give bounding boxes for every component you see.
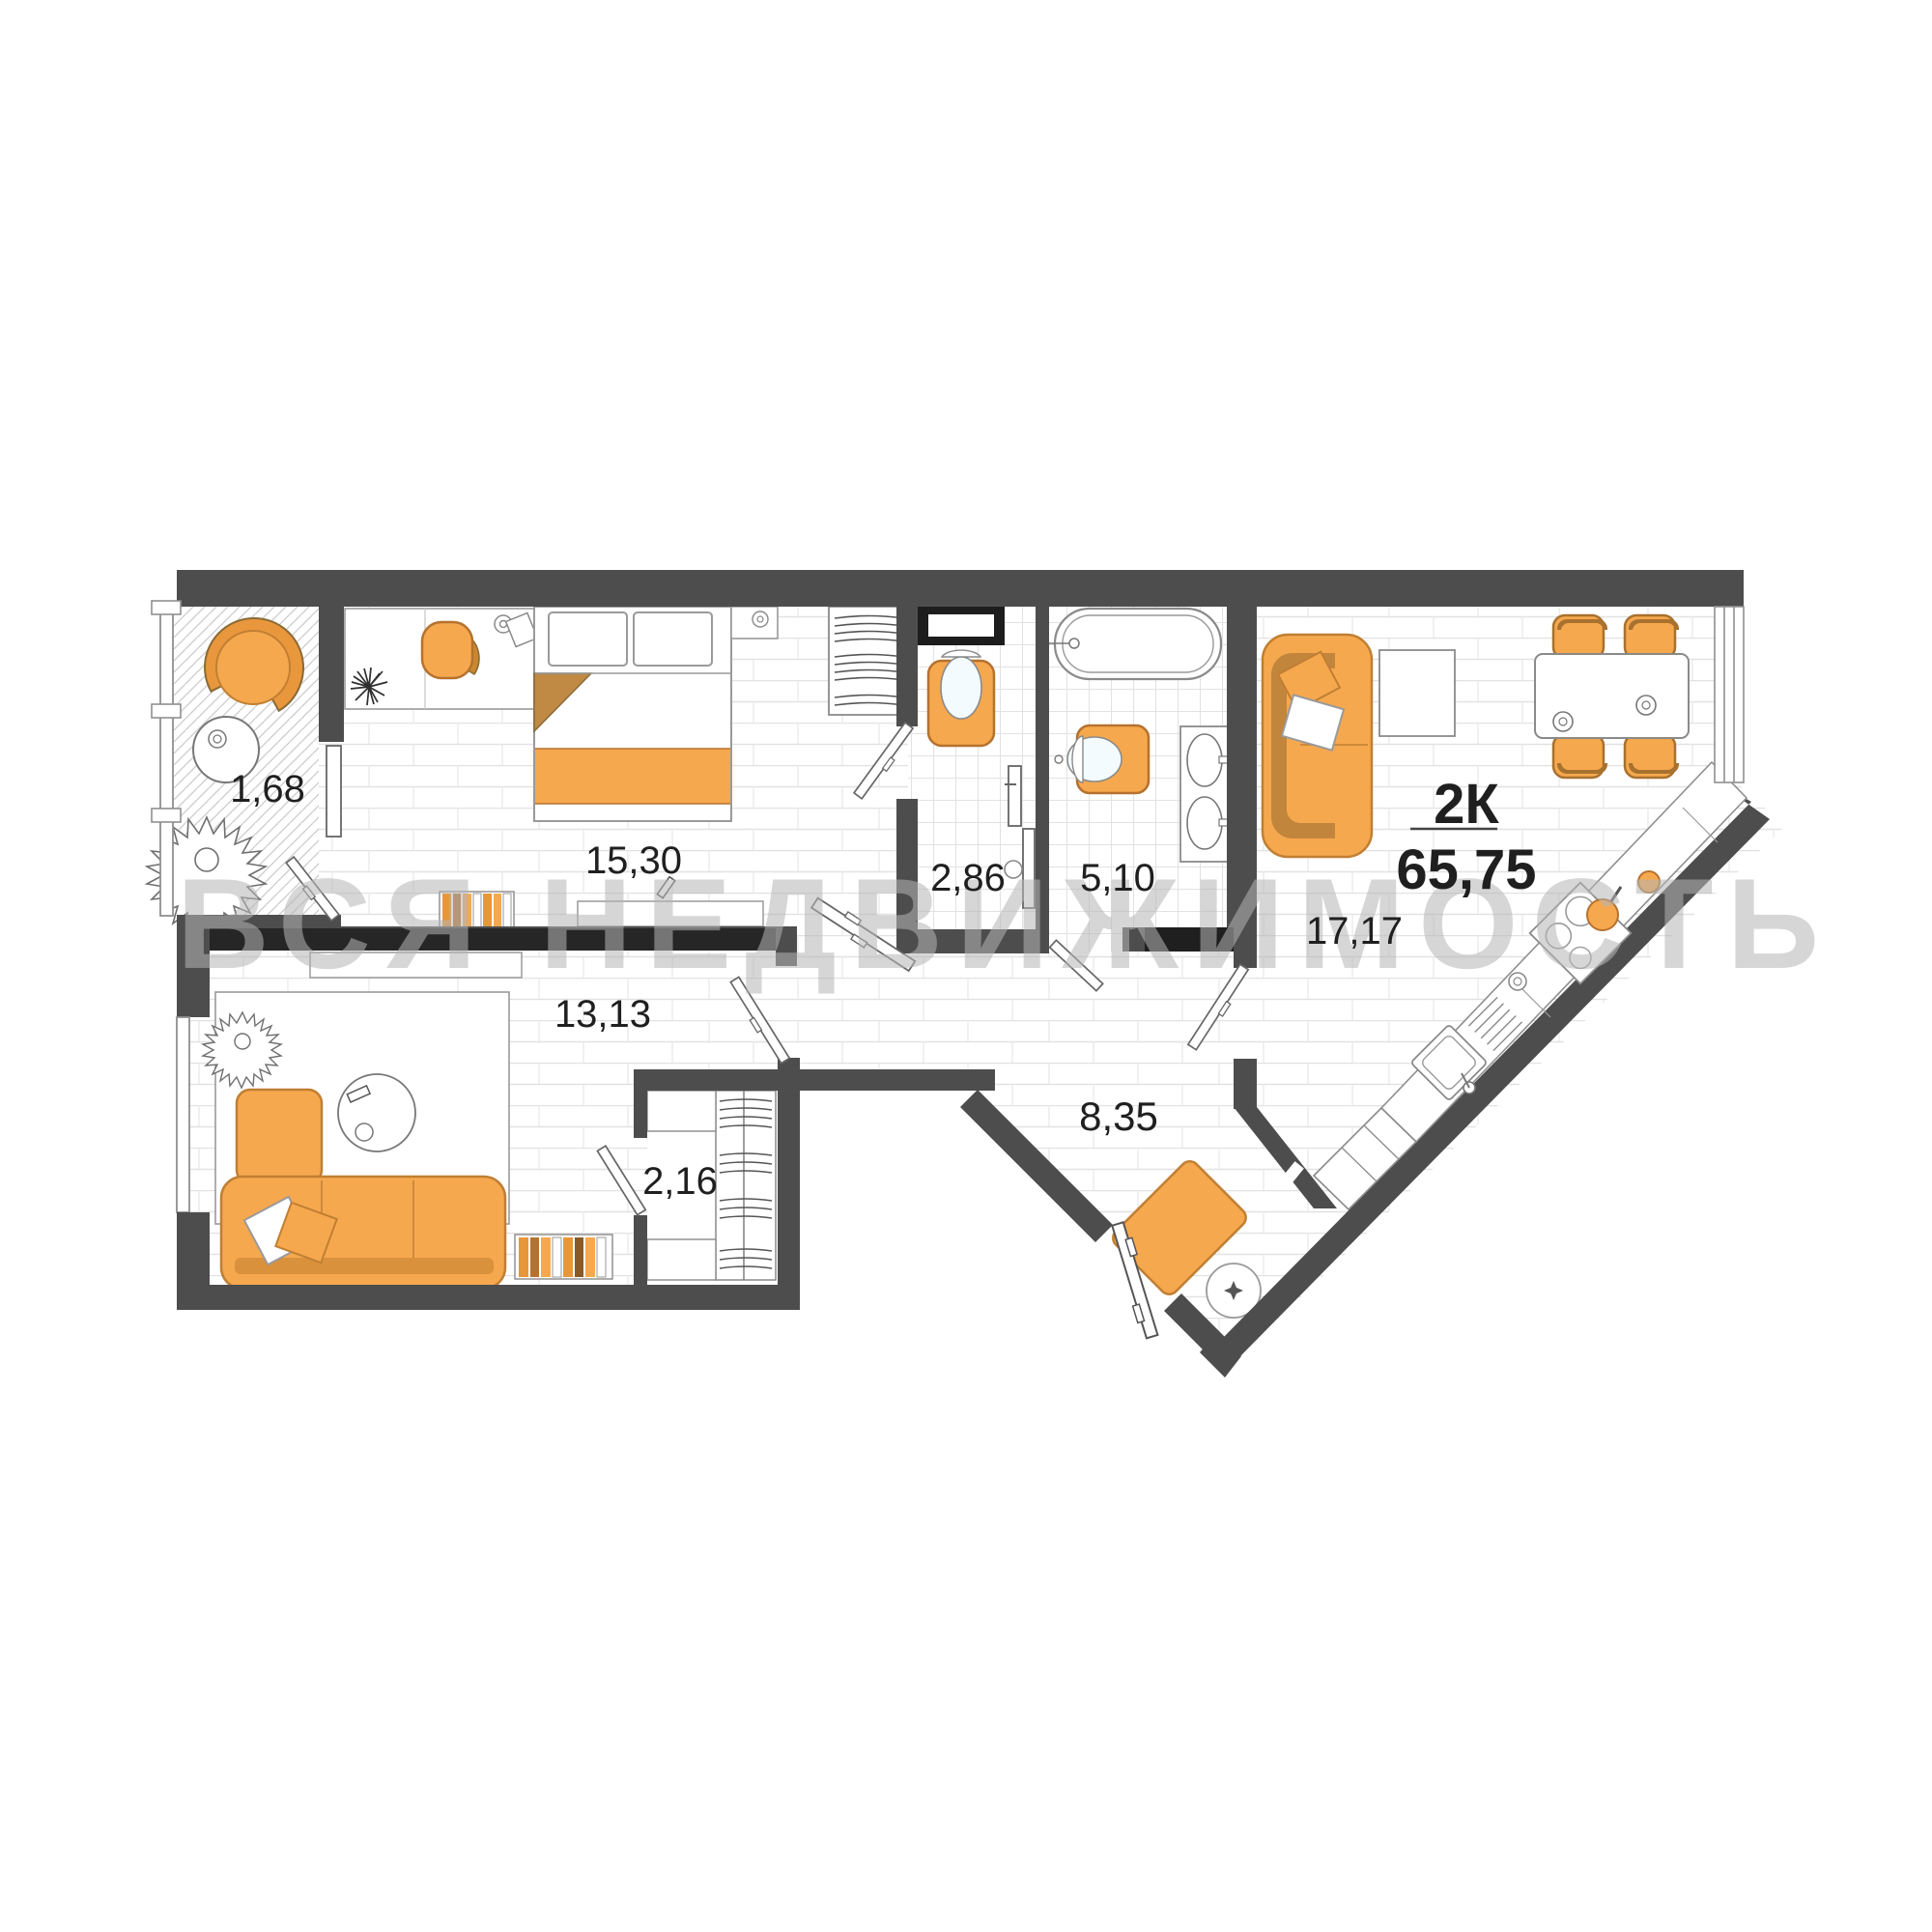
svg-text:17,17: 17,17	[1306, 910, 1403, 952]
svg-text:8,35: 8,35	[1079, 1094, 1158, 1139]
svg-text:1,68: 1,68	[230, 768, 305, 810]
svg-text:2,86: 2,86	[930, 857, 1006, 899]
svg-text:2,16: 2,16	[642, 1160, 718, 1203]
svg-text:15,30: 15,30	[585, 839, 682, 882]
svg-text:13,13: 13,13	[554, 993, 651, 1036]
svg-text:5,10: 5,10	[1080, 857, 1155, 899]
svg-text:65,75: 65,75	[1396, 838, 1536, 901]
svg-text:2К: 2К	[1434, 773, 1499, 836]
